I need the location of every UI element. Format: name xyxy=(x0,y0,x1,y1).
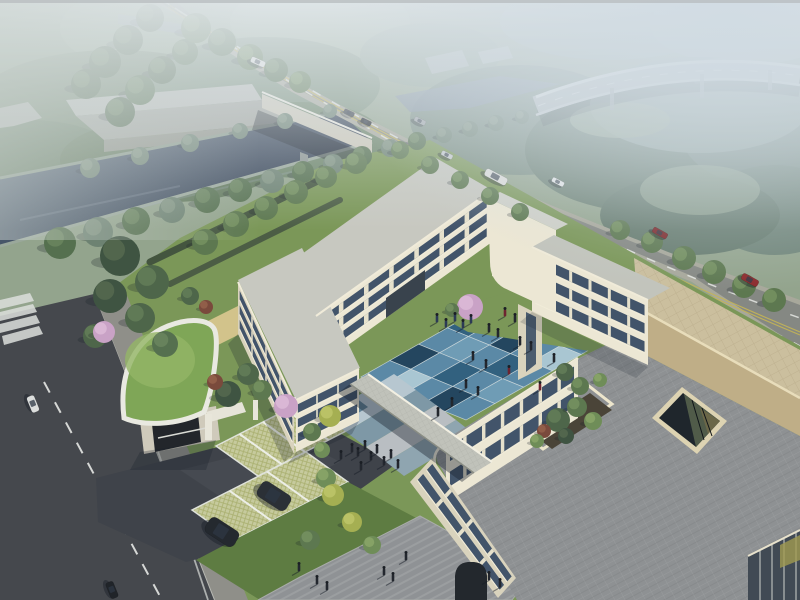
person-body xyxy=(364,443,367,450)
person-body xyxy=(351,446,354,453)
person-head xyxy=(405,551,408,554)
tree-highlight xyxy=(154,333,168,347)
window-pier xyxy=(337,399,339,408)
aerial-campus-rendering xyxy=(0,0,800,600)
person-body xyxy=(508,368,511,375)
person-head xyxy=(357,447,360,450)
person-head xyxy=(340,450,343,453)
person-head xyxy=(351,443,354,446)
person-head xyxy=(397,459,400,462)
window-pier xyxy=(482,424,485,441)
tree-highlight xyxy=(531,435,539,443)
person-body xyxy=(451,400,454,407)
tree-highlight xyxy=(572,378,582,388)
window-pier xyxy=(316,394,318,403)
window-pier xyxy=(520,425,523,442)
tree-highlight xyxy=(315,443,324,452)
person-head xyxy=(390,449,393,452)
person-body xyxy=(390,452,393,459)
window-pier xyxy=(520,399,523,416)
person-head xyxy=(298,562,301,565)
person-head xyxy=(376,444,379,447)
person-head xyxy=(392,572,395,575)
person-body xyxy=(405,554,408,561)
person-body xyxy=(477,389,480,396)
arched-opening xyxy=(455,562,487,600)
person-body xyxy=(472,354,475,361)
person-head xyxy=(485,359,488,362)
tree-highlight xyxy=(302,531,313,542)
person-body xyxy=(437,410,440,417)
gate-pillar xyxy=(205,414,212,440)
person-head xyxy=(326,581,329,584)
person-head xyxy=(383,566,386,569)
tree-highlight xyxy=(594,374,602,382)
tree-highlight xyxy=(548,410,561,423)
person-body xyxy=(553,356,556,363)
window-pier xyxy=(337,384,339,393)
person-head xyxy=(465,379,468,382)
window-pier xyxy=(501,411,504,428)
tree-highlight xyxy=(95,322,107,334)
haze-left xyxy=(0,0,260,240)
tree-highlight xyxy=(200,301,208,309)
window-pier xyxy=(501,437,504,454)
tree-highlight xyxy=(127,305,144,322)
person-body xyxy=(298,565,301,572)
person-body xyxy=(499,581,502,588)
person-body xyxy=(488,574,491,581)
person-body xyxy=(485,362,488,369)
window-pier xyxy=(316,409,318,418)
person-head xyxy=(530,341,533,344)
tree-highlight xyxy=(103,239,125,261)
person-body xyxy=(360,464,363,471)
tree-highlight xyxy=(304,424,314,434)
tree-highlight xyxy=(324,485,336,497)
person-head xyxy=(364,440,367,443)
person-body xyxy=(383,569,386,576)
person-head xyxy=(316,575,319,578)
tree-highlight xyxy=(96,281,115,300)
tree-highlight xyxy=(239,364,251,376)
south-arch-entry xyxy=(455,562,487,600)
tree-highlight xyxy=(344,513,355,524)
person-head xyxy=(451,397,454,400)
person-body xyxy=(392,575,395,582)
person-body xyxy=(397,462,400,469)
person-head xyxy=(383,456,386,459)
haze-top-right xyxy=(300,0,800,340)
person-head xyxy=(499,578,502,581)
person-body xyxy=(530,344,533,351)
tree-highlight xyxy=(182,288,192,298)
tree-highlight xyxy=(569,398,580,409)
person-head xyxy=(477,386,480,389)
tree-highlight xyxy=(138,267,157,286)
person-head xyxy=(508,365,511,368)
tree-highlight xyxy=(585,413,595,423)
tree-highlight xyxy=(254,381,265,392)
architectural-rendering-stage xyxy=(0,0,800,600)
person-body xyxy=(539,384,542,391)
person-head xyxy=(472,351,475,354)
person-head xyxy=(360,461,363,464)
tree-highlight xyxy=(559,429,568,438)
person-body xyxy=(326,584,329,591)
tree-highlight xyxy=(538,425,546,433)
tree-highlight xyxy=(321,406,333,418)
tree-highlight xyxy=(318,469,329,480)
person-body xyxy=(340,453,343,460)
fence-post xyxy=(253,400,258,420)
tree-highlight xyxy=(276,396,289,409)
tree-highlight xyxy=(364,537,374,547)
person-body xyxy=(316,578,319,585)
person-head xyxy=(437,407,440,410)
top-edge-line xyxy=(0,0,800,3)
person-head xyxy=(553,353,556,356)
person-body xyxy=(376,447,379,454)
person-head xyxy=(370,451,373,454)
tree-highlight xyxy=(208,375,217,384)
person-head xyxy=(539,381,542,384)
tree-highlight xyxy=(557,364,567,374)
person-body xyxy=(465,382,468,389)
person-head xyxy=(488,571,491,574)
